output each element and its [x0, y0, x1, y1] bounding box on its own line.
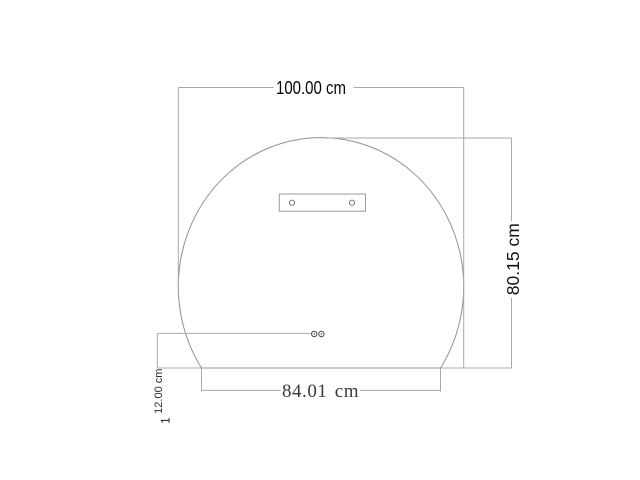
svg-text:100.00 cm: 100.00 cm: [276, 78, 346, 98]
svg-text:84.01 cm: 84.01 cm: [282, 381, 359, 402]
svg-text:12.00 cm: 12.00 cm: [153, 369, 165, 414]
svg-text:1: 1: [160, 417, 172, 423]
svg-text:80.15 cm: 80.15 cm: [503, 223, 523, 295]
